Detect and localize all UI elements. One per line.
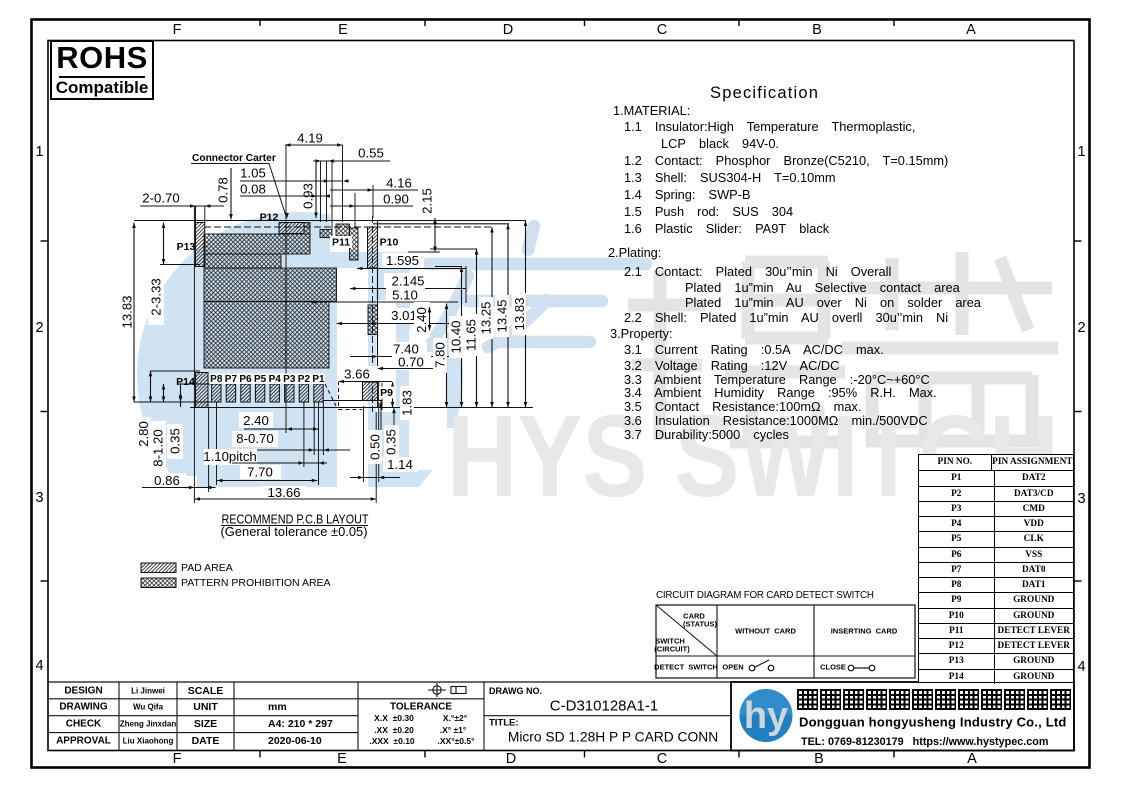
svg-text:P11: P11 [332, 237, 350, 249]
svg-text:(General tolerance ±0.05): (General tolerance ±0.05) [221, 525, 368, 539]
svg-text:7.80: 7.80 [433, 342, 448, 368]
svg-text:P3: P3 [283, 374, 296, 385]
svg-text:8-1.20: 8-1.20 [151, 429, 166, 466]
svg-text:0.50: 0.50 [368, 434, 383, 460]
svg-text:0.86: 0.86 [154, 473, 180, 488]
svg-text:1.83: 1.83 [400, 390, 415, 416]
svg-text:0.70: 0.70 [398, 355, 424, 370]
svg-text:0.35: 0.35 [168, 428, 183, 454]
svg-text:4.19: 4.19 [297, 131, 323, 146]
svg-text:0.78: 0.78 [216, 177, 231, 203]
svg-text:11.65: 11.65 [464, 319, 479, 351]
svg-text:hy: hy [744, 695, 788, 737]
svg-text:2.40: 2.40 [414, 307, 429, 333]
svg-text:13.66: 13.66 [267, 485, 300, 500]
svg-text:PATTERN PROHIBITION AREA: PATTERN PROHIBITION AREA [181, 577, 331, 589]
svg-text:P14: P14 [176, 376, 195, 388]
svg-text:13.83: 13.83 [512, 297, 527, 330]
svg-text:8-0.70: 8-0.70 [236, 431, 273, 446]
svg-text:P13: P13 [177, 241, 196, 253]
svg-text:4.16: 4.16 [386, 176, 412, 191]
svg-text:2-0.70: 2-0.70 [142, 191, 179, 206]
svg-text:2.80: 2.80 [136, 421, 151, 447]
svg-text:1.14: 1.14 [387, 457, 413, 472]
svg-text:7.70: 7.70 [247, 465, 273, 480]
svg-text:1.595: 1.595 [386, 253, 419, 268]
svg-text:Connector Carter: Connector Carter [192, 153, 276, 164]
svg-text:2.15: 2.15 [420, 188, 435, 214]
svg-text:P6: P6 [239, 374, 252, 385]
svg-text:3.01: 3.01 [391, 308, 417, 323]
svg-text:0.90: 0.90 [383, 192, 409, 207]
svg-text:5.10: 5.10 [392, 288, 418, 303]
svg-text:P8: P8 [210, 374, 223, 385]
svg-text:P2: P2 [298, 374, 311, 385]
svg-text:1.10pitch: 1.10pitch [203, 449, 257, 464]
svg-text:13.25: 13.25 [479, 301, 494, 334]
svg-text:PAD AREA: PAD AREA [181, 562, 233, 574]
svg-text:P9: P9 [380, 387, 393, 399]
svg-text:P12: P12 [260, 212, 279, 224]
svg-text:P1: P1 [312, 374, 325, 385]
svg-text:P7: P7 [225, 374, 238, 385]
svg-text:0.08: 0.08 [240, 182, 266, 197]
svg-text:2-3.33: 2-3.33 [149, 278, 164, 315]
svg-text:0.35: 0.35 [384, 429, 399, 455]
svg-text:P5: P5 [254, 374, 267, 385]
svg-text:2.145: 2.145 [391, 274, 424, 289]
svg-text:P4: P4 [269, 374, 282, 385]
svg-text:1.05: 1.05 [240, 166, 266, 181]
svg-text:P10: P10 [380, 237, 399, 249]
svg-text:0.55: 0.55 [358, 146, 384, 161]
svg-text:0.93: 0.93 [301, 183, 316, 209]
svg-text:2.40: 2.40 [243, 413, 269, 428]
svg-text:13.83: 13.83 [120, 295, 135, 328]
svg-text:3.66: 3.66 [344, 367, 370, 382]
svg-text:10.40: 10.40 [449, 320, 464, 353]
svg-text:13.45: 13.45 [495, 299, 510, 332]
